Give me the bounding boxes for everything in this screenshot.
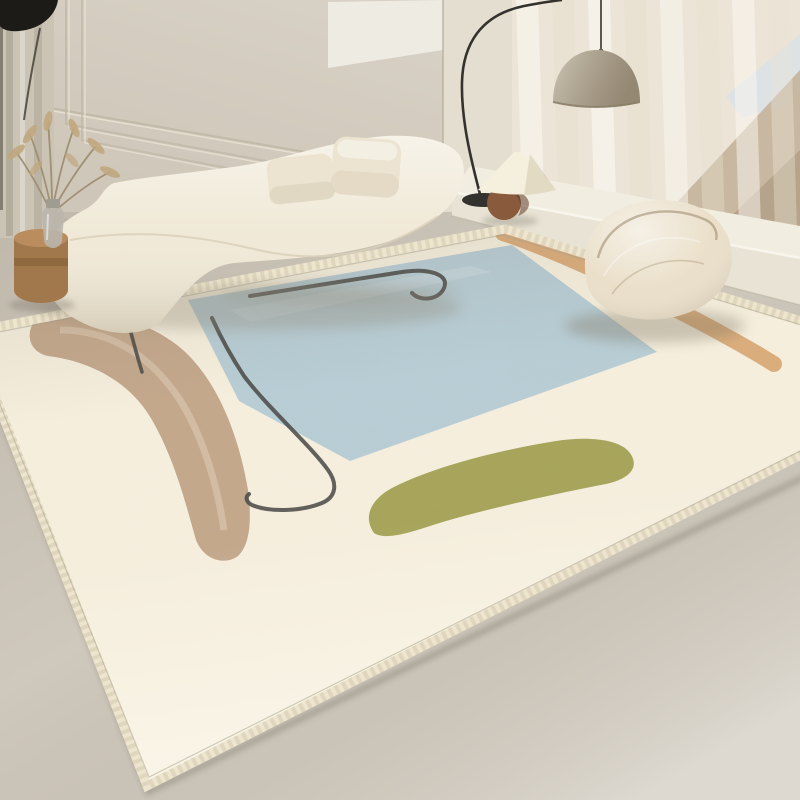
stool-body: [14, 238, 68, 303]
sofa-shadow-right: [220, 279, 460, 305]
drape-edge-shadow: [0, 0, 3, 210]
scene-canvas: [0, 0, 800, 800]
plant-vase: [42, 206, 64, 248]
cushion-right: [330, 136, 402, 199]
drape-fold-dark: [6, 0, 13, 236]
living-room-photo: [0, 0, 800, 800]
stool-groove: [14, 258, 68, 266]
cushion-left: [266, 153, 336, 206]
vase-neck: [46, 199, 60, 208]
vase-shine: [47, 214, 48, 240]
